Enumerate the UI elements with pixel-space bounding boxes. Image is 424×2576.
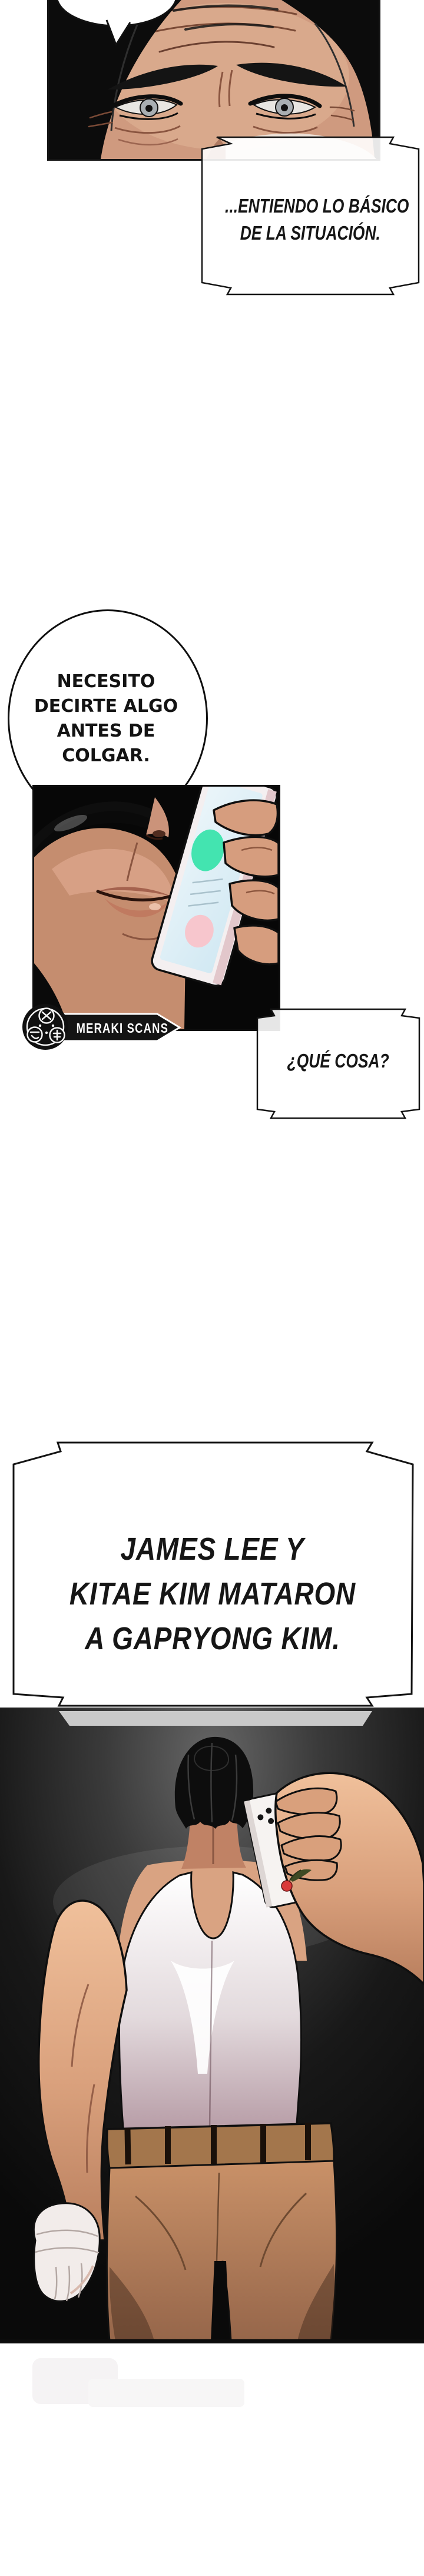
caption-reveal-line3: A GAPRYONG KIM. [9, 1620, 416, 1657]
caption-intro-line1: ...ENTIENDO LO BÁSICO [202, 195, 419, 217]
faint-watermark [88, 2379, 244, 2407]
bubble-line4: COLGAR. [18, 745, 194, 766]
caption-intro-line2: DE LA SITUACIÓN. [202, 222, 419, 244]
phone-call-art [34, 787, 279, 1029]
panel-phone-call [32, 785, 280, 1031]
credit-badge-label: MERAKI SCANS [65, 1020, 159, 1036]
pants [107, 2161, 336, 2341]
caption-box-reveal [9, 1437, 418, 1713]
caption-reveal-line1: JAMES LEE Y [9, 1531, 416, 1567]
meraki-logo-icon [22, 1004, 68, 1050]
caption-reveal-line2: KITAE KIM MATARON [9, 1576, 416, 1612]
bubble-line2: DECIRTE ALGO [18, 696, 194, 717]
back-figure-art [0, 1708, 424, 2343]
bubble-line3: ANTES DE [18, 721, 194, 741]
panel-back-figure [0, 1708, 424, 2343]
webtoon-page: ...ENTIENDO LO BÁSICO DE LA SITUACIÓN. N… [0, 0, 424, 2576]
caption-question-text: ¿QUÉ COSA? [257, 1050, 419, 1072]
bubble-line1: NECESITO [18, 671, 194, 692]
gripping-fingers [276, 1788, 341, 1880]
